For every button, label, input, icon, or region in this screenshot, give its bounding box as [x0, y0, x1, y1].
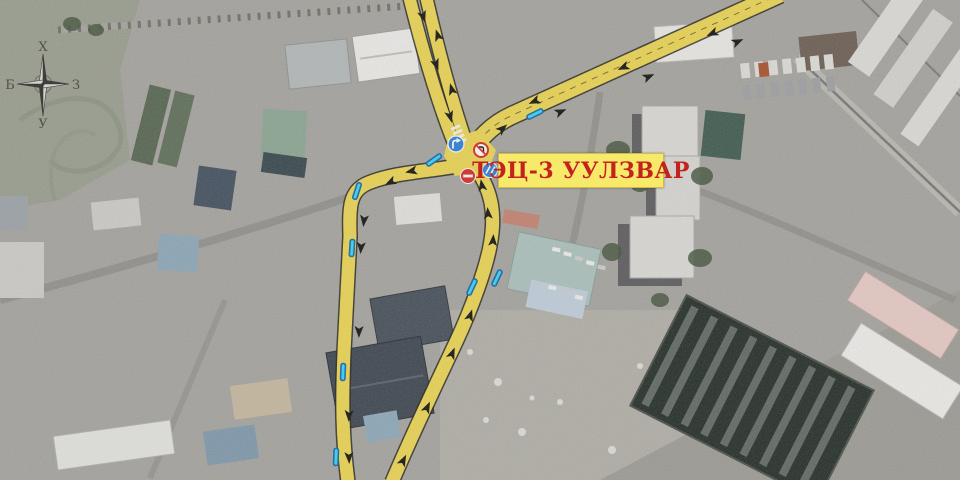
satellite-map: Х У Б З — [0, 0, 960, 480]
photo-grain-overlay — [0, 0, 960, 480]
map-viewport: Х У Б З ТЭЦ-3 УУЛЗВАР — [0, 0, 960, 480]
junction-label: ТЭЦ-3 УУЛЗВАР — [498, 153, 664, 188]
